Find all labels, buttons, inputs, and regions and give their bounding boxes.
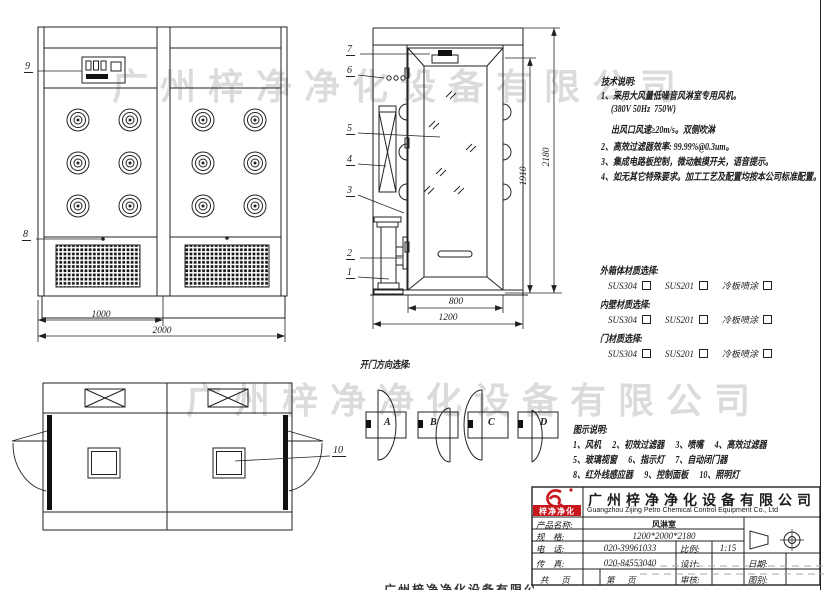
- checkbox-outer-coldplate: [763, 281, 772, 290]
- door-option-c-icon: [464, 390, 508, 460]
- air-grille-right: [185, 245, 269, 287]
- designer-label: 设计:: [680, 558, 700, 570]
- door-option-a-label: A: [384, 417, 391, 428]
- door-closer: [432, 50, 458, 63]
- tech-notes-title: 技术说明:: [601, 73, 636, 88]
- checkbox-door-sus304: [642, 349, 651, 358]
- callout-10: 10: [332, 445, 346, 457]
- tech-note-1b: 出风口风速≥20m/s。双侧吹淋: [611, 121, 715, 136]
- door-direction-icons: [366, 390, 558, 462]
- drawing-sheet: 广州梓净净化设备有限公司 广州梓净净化设备有限公司: [0, 0, 825, 590]
- legend-item-10: 10、照明灯: [699, 466, 739, 481]
- door-option-d-label: D: [540, 417, 547, 428]
- dim-front-half: 1000: [92, 310, 111, 320]
- dim-side-depth: 1200: [439, 313, 458, 323]
- door-direction-title: 开门方向选择:: [360, 356, 411, 371]
- tech-note-3: 3、集成电路板控制，微动触摸开关，语音提示。: [601, 153, 773, 168]
- legend-item-7: 7、自动闭门器: [675, 451, 727, 466]
- checkbox-outer-sus304: [642, 281, 651, 290]
- projection-symbol-icon: [750, 529, 804, 551]
- option-coldplate: 冷板喷涂: [722, 347, 758, 360]
- door-option-d-icon: [518, 410, 558, 462]
- material-group-outer-label: 外箱体材质选择:: [600, 262, 659, 277]
- tech-note-2: 2、高效过滤器效率: 99.99%@0.3um。: [601, 138, 734, 153]
- date-label: 日期:: [748, 558, 768, 570]
- legend-item-3: 3、喷嘴: [675, 436, 703, 451]
- checkbox-inner-coldplate: [763, 315, 772, 324]
- option-sus304: SUS304: [608, 349, 637, 359]
- legend-item-6: 6、指示灯: [628, 451, 664, 466]
- dim-side-door: 800: [449, 297, 463, 307]
- tel-value: 020-39961033: [584, 543, 676, 553]
- callout-1: 1: [346, 267, 355, 279]
- callout-7: 7: [346, 44, 355, 56]
- page-number-label: 第 页: [606, 574, 636, 586]
- legend-item-4: 4、高效过滤器: [715, 436, 767, 451]
- option-coldplate: 冷板喷涂: [722, 313, 758, 326]
- option-coldplate: 冷板喷涂: [722, 279, 758, 292]
- control-panel: [82, 57, 125, 83]
- option-sus304: SUS304: [608, 281, 637, 291]
- material-options-inner: SUS304 SUS201 冷板喷涂: [608, 313, 772, 326]
- checkbox-inner-sus304: [642, 315, 651, 324]
- drawing-type-label: 图别:: [748, 574, 768, 586]
- logo-text: 梓净净化: [533, 506, 581, 517]
- door-option-b-icon: [418, 408, 458, 462]
- callout-8: 8: [22, 229, 31, 241]
- spec-label: 规 格:: [536, 531, 564, 543]
- fax-label: 传 真:: [536, 558, 564, 570]
- tel-label: 电 话:: [536, 543, 564, 555]
- callout-5: 5: [346, 123, 355, 135]
- legend-item-8: 8、红外线感应器: [573, 466, 633, 481]
- material-group-door-label: 门材质选择:: [600, 330, 643, 345]
- footer-clipped-text: 广州梓净净化设备有限公司: [384, 581, 534, 590]
- company-name-en: Guangzhou Zijing Petro Chemical Control …: [587, 507, 778, 514]
- legend-row-3: 8、红外线感应器 9、控制面板 10、照明灯: [573, 466, 739, 481]
- option-sus201: SUS201: [665, 315, 694, 325]
- option-sus201: SUS201: [665, 349, 694, 359]
- side-view: [358, 28, 562, 329]
- door-handle: [438, 251, 472, 257]
- door-frame: [408, 48, 503, 290]
- spec-value: 1200*2000*2180: [584, 531, 744, 541]
- legend-item-9: 9、控制面板: [644, 466, 688, 481]
- door-option-b-label: B: [430, 417, 437, 428]
- nozzles-front: [67, 109, 266, 217]
- side-nozzles: [399, 104, 511, 200]
- plan-view: [12, 383, 330, 530]
- callout-2: 2: [346, 248, 355, 260]
- front-view: [36, 27, 287, 342]
- checkbox-door-coldplate: [763, 349, 772, 358]
- dim-side-inner-height: 1910: [519, 167, 529, 186]
- indicator-lights: [387, 76, 405, 80]
- door-option-c-label: C: [488, 417, 495, 428]
- callout-6: 6: [346, 65, 355, 77]
- legend-item-2: 2、初效过滤器: [612, 436, 664, 451]
- dim-side-total-height: 2180: [542, 148, 552, 167]
- dim-front-full: 2000: [153, 326, 172, 336]
- total-pages-label: 共 页: [540, 574, 570, 586]
- legend-item-1: 1、风机: [573, 436, 601, 451]
- legend-item-5: 5、玻璃视窗: [573, 451, 617, 466]
- hepa-filter-box: [379, 106, 396, 192]
- fax-value: 020-84553040: [584, 558, 676, 568]
- legend-row-1: 1、风机 2、初效过滤器 3、喷嘴 4、高效过滤器: [573, 436, 767, 451]
- fan-unit: [374, 217, 407, 294]
- product-name-label: 产品名称:: [536, 519, 573, 531]
- callout-4: 4: [346, 154, 355, 166]
- glass-hatching: [424, 91, 476, 194]
- product-name-value: 风淋室: [584, 519, 744, 530]
- scale-label: 比例:: [680, 543, 700, 555]
- callout-3: 3: [346, 185, 355, 197]
- tech-note-1a: (380V 50Hz 750W): [611, 104, 676, 115]
- checkbox-inner-sus201: [699, 315, 708, 324]
- material-options-outer: SUS304 SUS201 冷板喷涂: [608, 279, 772, 292]
- material-options-door: SUS304 SUS201 冷板喷涂: [608, 347, 772, 360]
- checkbox-outer-sus201: [699, 281, 708, 290]
- material-group-inner-label: 内壁材质选择:: [600, 296, 651, 311]
- air-grille-left: [56, 245, 140, 287]
- option-sus201: SUS201: [665, 281, 694, 291]
- tech-note-4: 4、如无其它特殊要求。加工工艺及配置均按本公司标准配置。: [601, 168, 821, 183]
- option-sus304: SUS304: [608, 315, 637, 325]
- legend-row-2: 5、玻璃视窗 6、指示灯 7、自动闭门器: [573, 451, 727, 466]
- scale-value: 1:15: [712, 543, 744, 553]
- legend-title: 图示说明:: [573, 421, 608, 436]
- tech-note-1: 1、采用大风量低噪音风淋室专用风机。: [601, 87, 741, 102]
- auditor-label: 审核:: [680, 574, 700, 586]
- callout-9: 9: [24, 61, 33, 73]
- checkbox-door-sus201: [699, 349, 708, 358]
